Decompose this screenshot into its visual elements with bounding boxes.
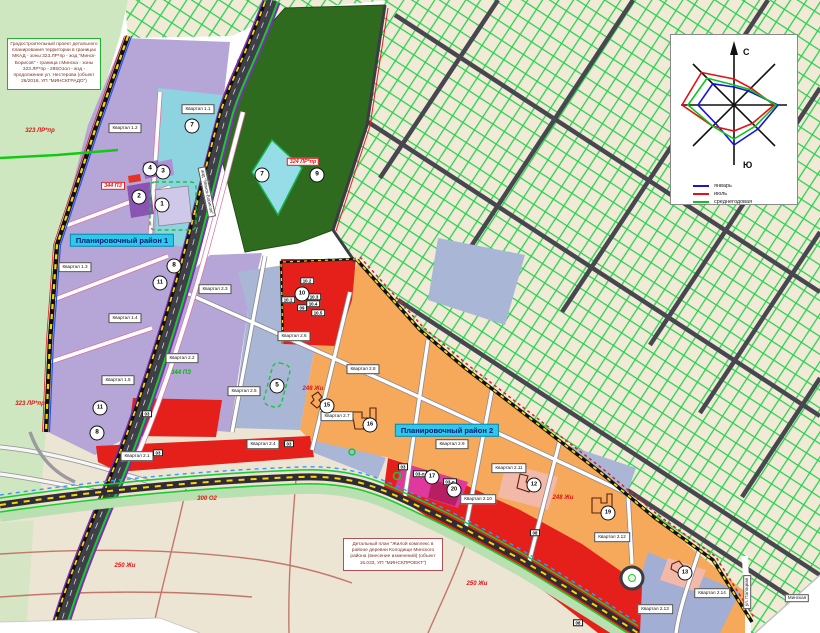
south-label: Ю — [743, 160, 752, 170]
rose-legend-item: июль — [693, 190, 797, 198]
rose-legend-swatch — [693, 193, 709, 195]
rose-legend-swatch — [693, 185, 709, 187]
rose-legend-label: среднегодовая — [714, 199, 752, 205]
wind-rose-chart: С Ю — [671, 35, 797, 175]
rose-legend-item: среднегодовая — [693, 198, 797, 206]
plan-map-sheet[interactable]: Квартал 1.1Квартал 1.2Квартал 1.3Квартал… — [0, 0, 820, 633]
north-label: С — [743, 47, 750, 57]
wind-rose-legend-rows: январьиюльсреднегодовая — [671, 180, 797, 206]
project-title-block: Градостроительный проект детального план… — [7, 38, 101, 90]
wind-rose-legend: С Ю январьиюльсреднегодовая — [670, 34, 798, 205]
roundabout-island — [629, 575, 636, 582]
rose-legend-label: январь — [714, 183, 732, 189]
north-arrow — [730, 41, 738, 55]
detail-plan-note-block: Детальный план "Жилой комплекс в районе … — [343, 538, 443, 571]
rose-legend-swatch — [693, 201, 709, 203]
rose-legend-label: июль — [714, 191, 727, 197]
polotskaya-street — [745, 556, 748, 633]
rose-legend-item: январь — [693, 182, 797, 190]
